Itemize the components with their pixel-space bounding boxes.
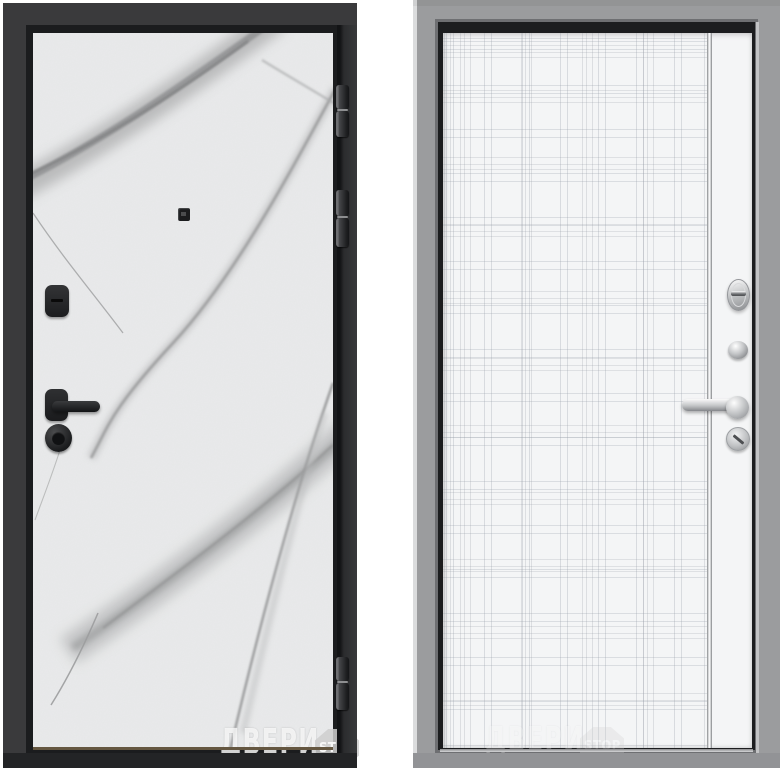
peephole-lens	[181, 212, 186, 216]
hinge-bottom	[336, 657, 349, 710]
hinge-knuckle	[336, 657, 349, 681]
frame-edge-highlight-right	[756, 22, 759, 753]
deadbolt-knob	[45, 424, 72, 452]
peephole	[178, 208, 190, 221]
thumbturn-lock	[727, 279, 750, 311]
hinge-middle	[336, 190, 349, 247]
frame-bottom-rail	[3, 753, 357, 768]
thumbturn-bar	[731, 291, 746, 296]
lined-white-panel: ДВЕРИ STOP	[443, 33, 752, 748]
hinge-knuckle	[336, 85, 349, 109]
door-product-photo: ДВЕРИ STOP	[0, 0, 780, 768]
frame-top-shade	[413, 0, 780, 6]
key-slot	[733, 434, 745, 445]
keyhole-slot	[51, 299, 63, 302]
lever-handle-front	[45, 389, 145, 425]
hinge-knuckle	[336, 190, 349, 216]
hinge-knuckle	[336, 683, 349, 710]
night-latch-knob	[728, 341, 748, 359]
deadbolt-knob-center	[52, 432, 65, 445]
handle-lever-bar	[52, 401, 100, 412]
frame-bottom-rail	[413, 753, 780, 768]
chrome-moulding-strip	[707, 33, 712, 748]
keyhole-escutcheon	[45, 285, 69, 317]
crosshatch-texture	[443, 33, 707, 748]
panel-bottom-trim	[33, 747, 333, 750]
hinge-knuckle	[336, 218, 349, 247]
key-cylinder	[726, 427, 750, 451]
handle-rosette	[726, 396, 749, 419]
door-front-view: ДВЕРИ STOP	[3, 3, 357, 768]
panel-bottom-sill	[440, 749, 753, 752]
frame-edge-highlight-left	[413, 0, 417, 768]
door-back-view: ДВЕРИ STOP	[413, 0, 780, 768]
hinge-knuckle	[336, 111, 349, 137]
hinge-top	[336, 85, 349, 137]
